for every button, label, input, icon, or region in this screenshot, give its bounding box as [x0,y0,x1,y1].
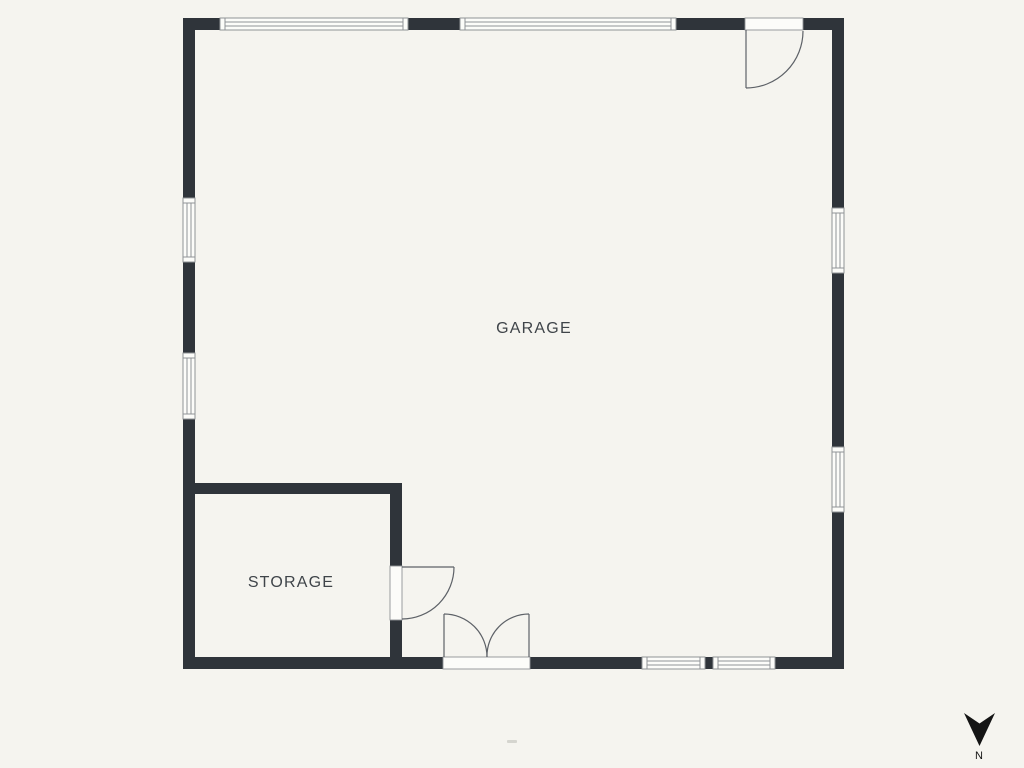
room-label-garage: GARAGE [496,320,572,337]
wall-segment [390,483,402,566]
window-bottom-left [642,657,705,669]
door-swing-arc [402,567,454,619]
door-swing-arc-left [444,614,487,657]
north-arrow-icon [964,713,995,746]
window-frame [642,657,705,669]
entry-door [745,18,803,88]
room-label-storage: STORAGE [248,574,334,591]
wall-segment [676,18,745,30]
window-left-lower [183,353,195,419]
wall-segment [832,512,844,669]
door-swing-arc [746,31,803,88]
window-right-upper [832,208,844,273]
exterior-wall-right [832,18,844,669]
window-frame [183,353,195,419]
watermark-mark [507,740,517,743]
floorplan-drawing: GARAGE STORAGE N [0,0,1024,768]
garage-double-door [443,614,530,669]
wall-segment [530,657,642,669]
wall-segment [195,483,400,494]
wall-segment [183,419,195,669]
window-top-left [220,18,408,30]
window-frame [832,447,844,512]
window-right-lower [832,447,844,512]
wall-segment [775,657,844,669]
window-bottom-right [713,657,775,669]
window-top-right [460,18,676,30]
wall-segment [183,262,195,353]
wall-segment [832,273,844,447]
storage-interior-walls [195,483,402,657]
exterior-wall-left [183,18,195,669]
window-frame [832,208,844,273]
floorplan-page: GARAGE STORAGE N [0,0,1024,768]
window-frame [460,18,676,30]
storage-door [390,566,454,620]
door-opening [443,657,530,669]
wall-segment [390,620,402,657]
north-label: N [975,750,983,762]
window-frame [713,657,775,669]
door-swing-arc-right [487,614,529,657]
wall-segment [183,18,195,198]
watermark-dot [507,740,517,743]
compass-north: N [964,713,995,762]
wall-segment [408,18,460,30]
window-left-upper [183,198,195,262]
wall-segment [705,657,713,669]
door-opening [745,18,803,30]
window-frame [220,18,408,30]
wall-segment [832,18,844,208]
window-frame [183,198,195,262]
wall-segment [183,657,443,669]
door-opening [390,566,402,620]
